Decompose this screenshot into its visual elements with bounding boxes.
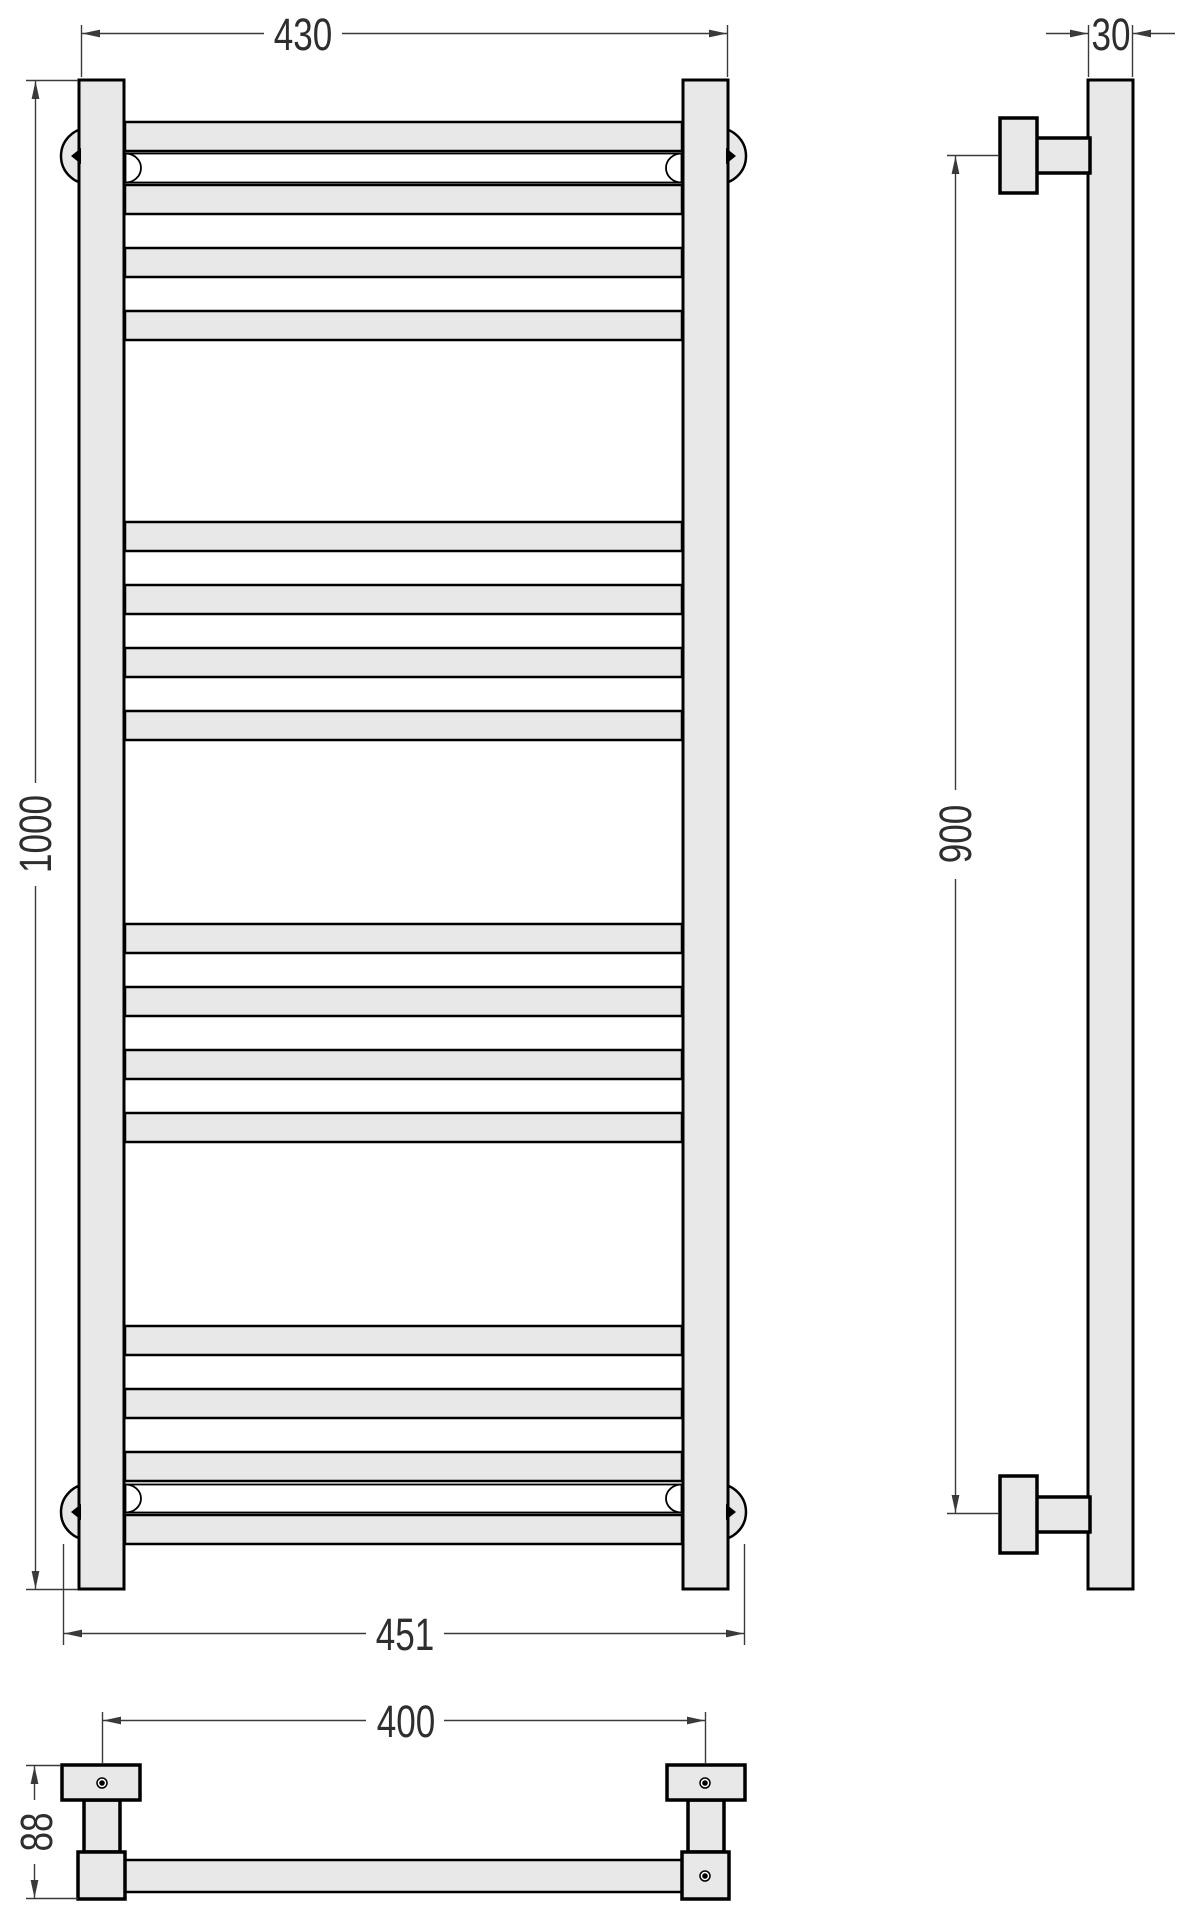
arrowhead: [1070, 30, 1088, 38]
rung: [125, 1389, 682, 1418]
arrowhead: [32, 1571, 40, 1589]
dim-mount-width: 400: [103, 1696, 706, 1764]
rungs: [125, 122, 682, 1544]
top-bracket-plate: [1000, 118, 1037, 193]
technical-drawing: 430 1000 451: [0, 0, 1193, 1920]
arrowhead: [32, 81, 40, 99]
arrowhead: [952, 1495, 960, 1513]
screw-hole-dot: [702, 1780, 708, 1786]
plan-right-arm: [688, 1800, 724, 1852]
rung: [125, 1326, 682, 1355]
right-post: [683, 80, 728, 1589]
arrowhead: [82, 30, 100, 38]
dim-height: 1000: [10, 81, 78, 1590]
plan-tube: [125, 1860, 682, 1892]
mounting-crossbars: [126, 154, 682, 1513]
dim-bottom-width: 451: [64, 1544, 745, 1660]
rung: [125, 248, 682, 277]
rung: [125, 311, 682, 340]
dim-top-width: 430: [82, 9, 728, 77]
rung: [125, 585, 682, 614]
rung: [125, 1452, 682, 1481]
arrowhead: [709, 30, 727, 38]
dim-height-label: 1000: [10, 795, 61, 873]
plan-left-post-block: [78, 1852, 125, 1899]
arrowhead: [64, 1630, 82, 1638]
arrowhead: [1133, 30, 1151, 38]
front-view: [61, 80, 746, 1589]
side-view: [1000, 80, 1133, 1589]
dim-bottom-width-label: 451: [376, 1609, 435, 1660]
arrowhead: [103, 1717, 121, 1725]
bracket-tips: [71, 148, 736, 1520]
rung: [125, 924, 682, 953]
dim-depth: 30: [1046, 9, 1175, 77]
bottom-view: [62, 1765, 745, 1899]
rung: [125, 1113, 682, 1142]
dim-depth-label: 30: [1091, 9, 1130, 60]
crossbar-tube-top: [126, 154, 682, 183]
arrowhead: [687, 1717, 705, 1725]
dim-mount-height-label: 900: [930, 805, 981, 864]
plan-left-arm: [84, 1800, 120, 1852]
rung: [125, 1515, 682, 1544]
drawing-page: 430 1000 451: [0, 0, 1193, 1920]
rung: [125, 648, 682, 677]
crossbar-tube-bottom: [126, 1485, 682, 1513]
arrowhead: [31, 1766, 39, 1784]
rung: [125, 185, 682, 214]
top-bracket-arm: [1036, 138, 1090, 173]
rung: [125, 522, 682, 551]
rung: [125, 711, 682, 740]
side-bar: [1088, 80, 1133, 1589]
bottom-bracket-arm: [1036, 1497, 1090, 1532]
arrowhead: [726, 1630, 744, 1638]
left-post: [79, 80, 124, 1589]
rung: [125, 1050, 682, 1079]
dim-mount-height: 900: [930, 156, 999, 1514]
screw-hole-dot: [99, 1780, 105, 1786]
arrowhead: [952, 156, 960, 174]
rung: [125, 987, 682, 1016]
arrowhead: [31, 1880, 39, 1898]
rung: [125, 122, 682, 151]
dim-bracket-height-label: 88: [11, 1812, 62, 1851]
bottom-bracket-plate: [1000, 1476, 1037, 1553]
screw-hole-dot: [702, 1873, 708, 1879]
dim-top-width-label: 430: [274, 9, 333, 60]
dim-mount-width-label: 400: [377, 1696, 436, 1747]
